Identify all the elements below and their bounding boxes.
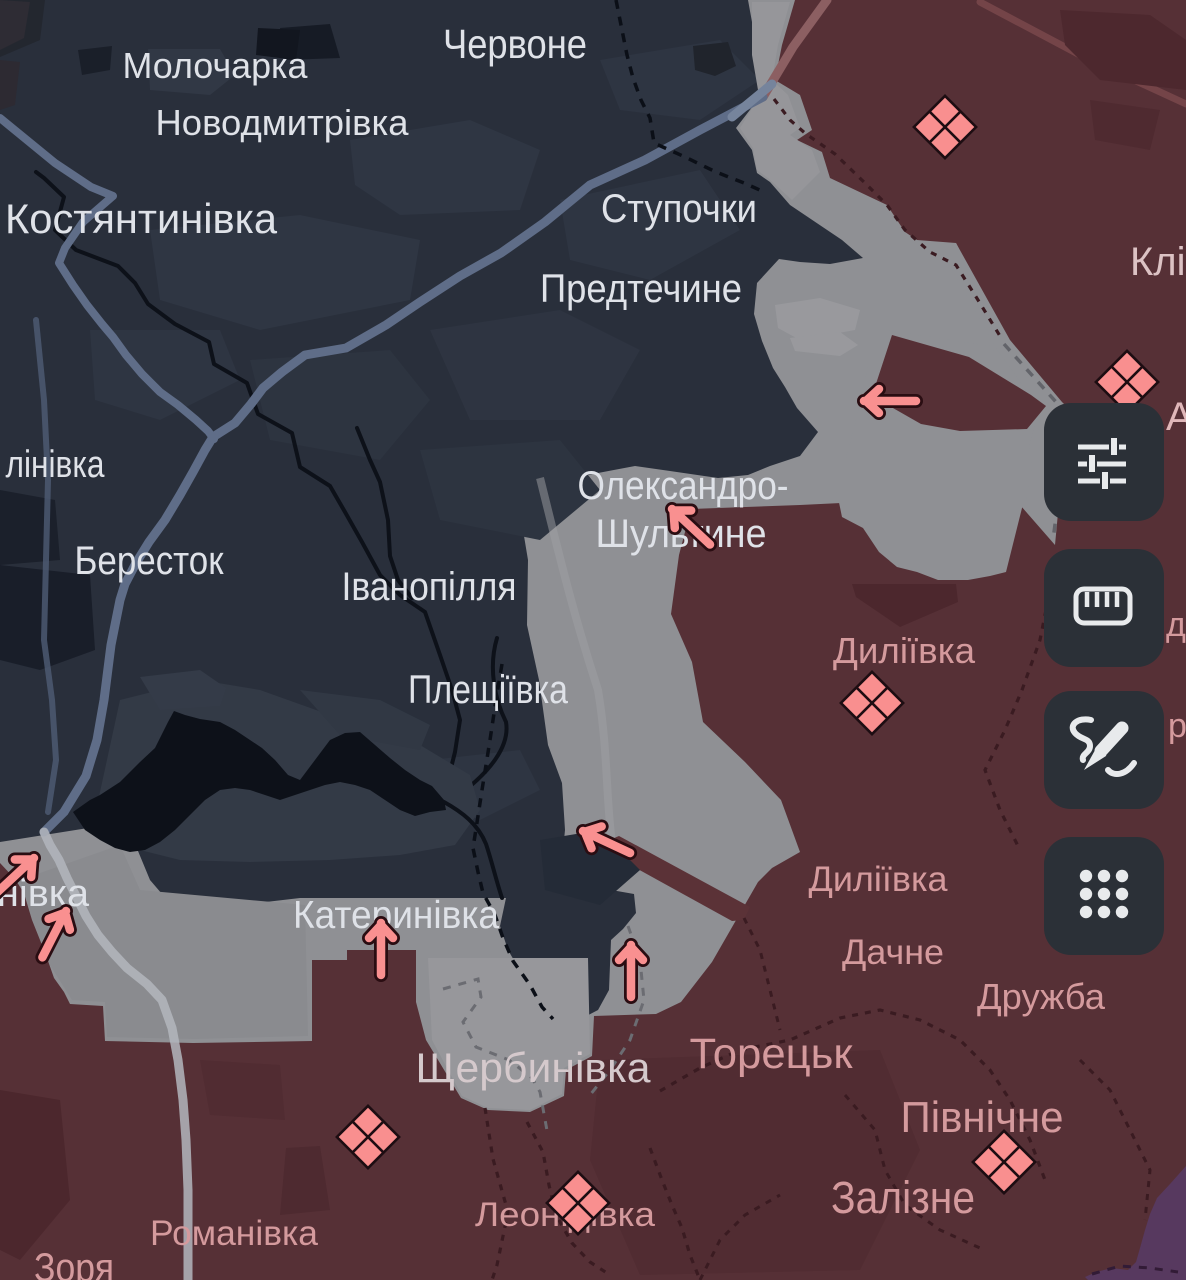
svg-text:Залізне: Залізне (831, 1172, 975, 1223)
svg-text:Торецьк: Торецьк (690, 1030, 854, 1078)
svg-text:Диліївка: Диліївка (809, 860, 949, 899)
svg-text:Кліщіївка: Кліщіївка (1130, 240, 1186, 284)
svg-text:Олександро-: Олександро- (578, 464, 789, 508)
svg-text:Новодмитрівка: Новодмитрівка (156, 102, 410, 143)
svg-text:Дачне: Дачне (842, 933, 944, 972)
svg-text:Костянтинівка: Костянтинівка (5, 195, 278, 242)
svg-text:Диліївка: Диліївка (833, 630, 976, 671)
svg-text:ря: ря (1168, 707, 1186, 745)
svg-text:Молочарка: Молочарка (123, 45, 309, 86)
svg-text:Іванопілля: Іванопілля (342, 565, 517, 609)
svg-text:Щербинівка: Щербинівка (416, 1044, 652, 1091)
svg-text:Ан: Ан (1166, 395, 1186, 439)
svg-text:Дружба: Дружба (977, 976, 1106, 1017)
svg-text:Романівка: Романівка (150, 1214, 319, 1253)
svg-text:Зоря: Зоря (34, 1246, 114, 1280)
svg-text:Північне: Північне (901, 1093, 1064, 1142)
svg-text:Предтечине: Предтечине (540, 267, 742, 311)
svg-text:Плещіївка: Плещіївка (408, 668, 569, 712)
svg-text:Катеринівка: Катеринівка (293, 894, 499, 937)
svg-text:Червоне: Червоне (443, 21, 587, 67)
svg-text:Ступочки: Ступочки (601, 187, 757, 231)
svg-text:Бересток: Бересток (75, 539, 224, 583)
svg-text:дні: дні (1166, 606, 1186, 644)
svg-text:лінівка: лінівка (6, 444, 106, 486)
